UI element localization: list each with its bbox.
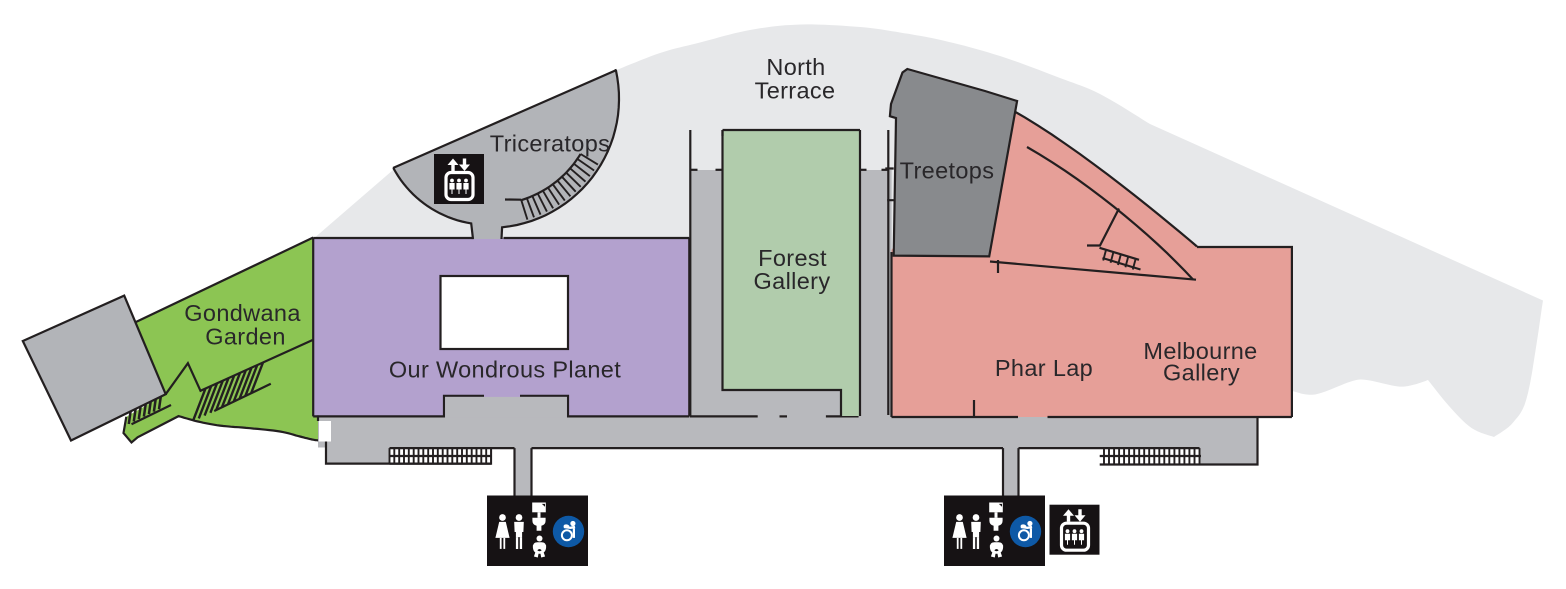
- svg-text:Terrace: Terrace: [755, 77, 836, 103]
- svg-text:Our Wondrous Planet: Our Wondrous Planet: [389, 356, 621, 382]
- svg-text:Gallery: Gallery: [754, 268, 831, 294]
- svg-text:Triceratops: Triceratops: [490, 131, 611, 157]
- svg-text:Treetops: Treetops: [900, 158, 995, 184]
- svg-text:Garden: Garden: [205, 324, 285, 350]
- svg-text:Gondwana: Gondwana: [184, 300, 301, 326]
- svg-text:Phar Lap: Phar Lap: [995, 355, 1093, 381]
- svg-text:Gallery: Gallery: [1163, 360, 1240, 386]
- svg-text:North: North: [766, 54, 825, 80]
